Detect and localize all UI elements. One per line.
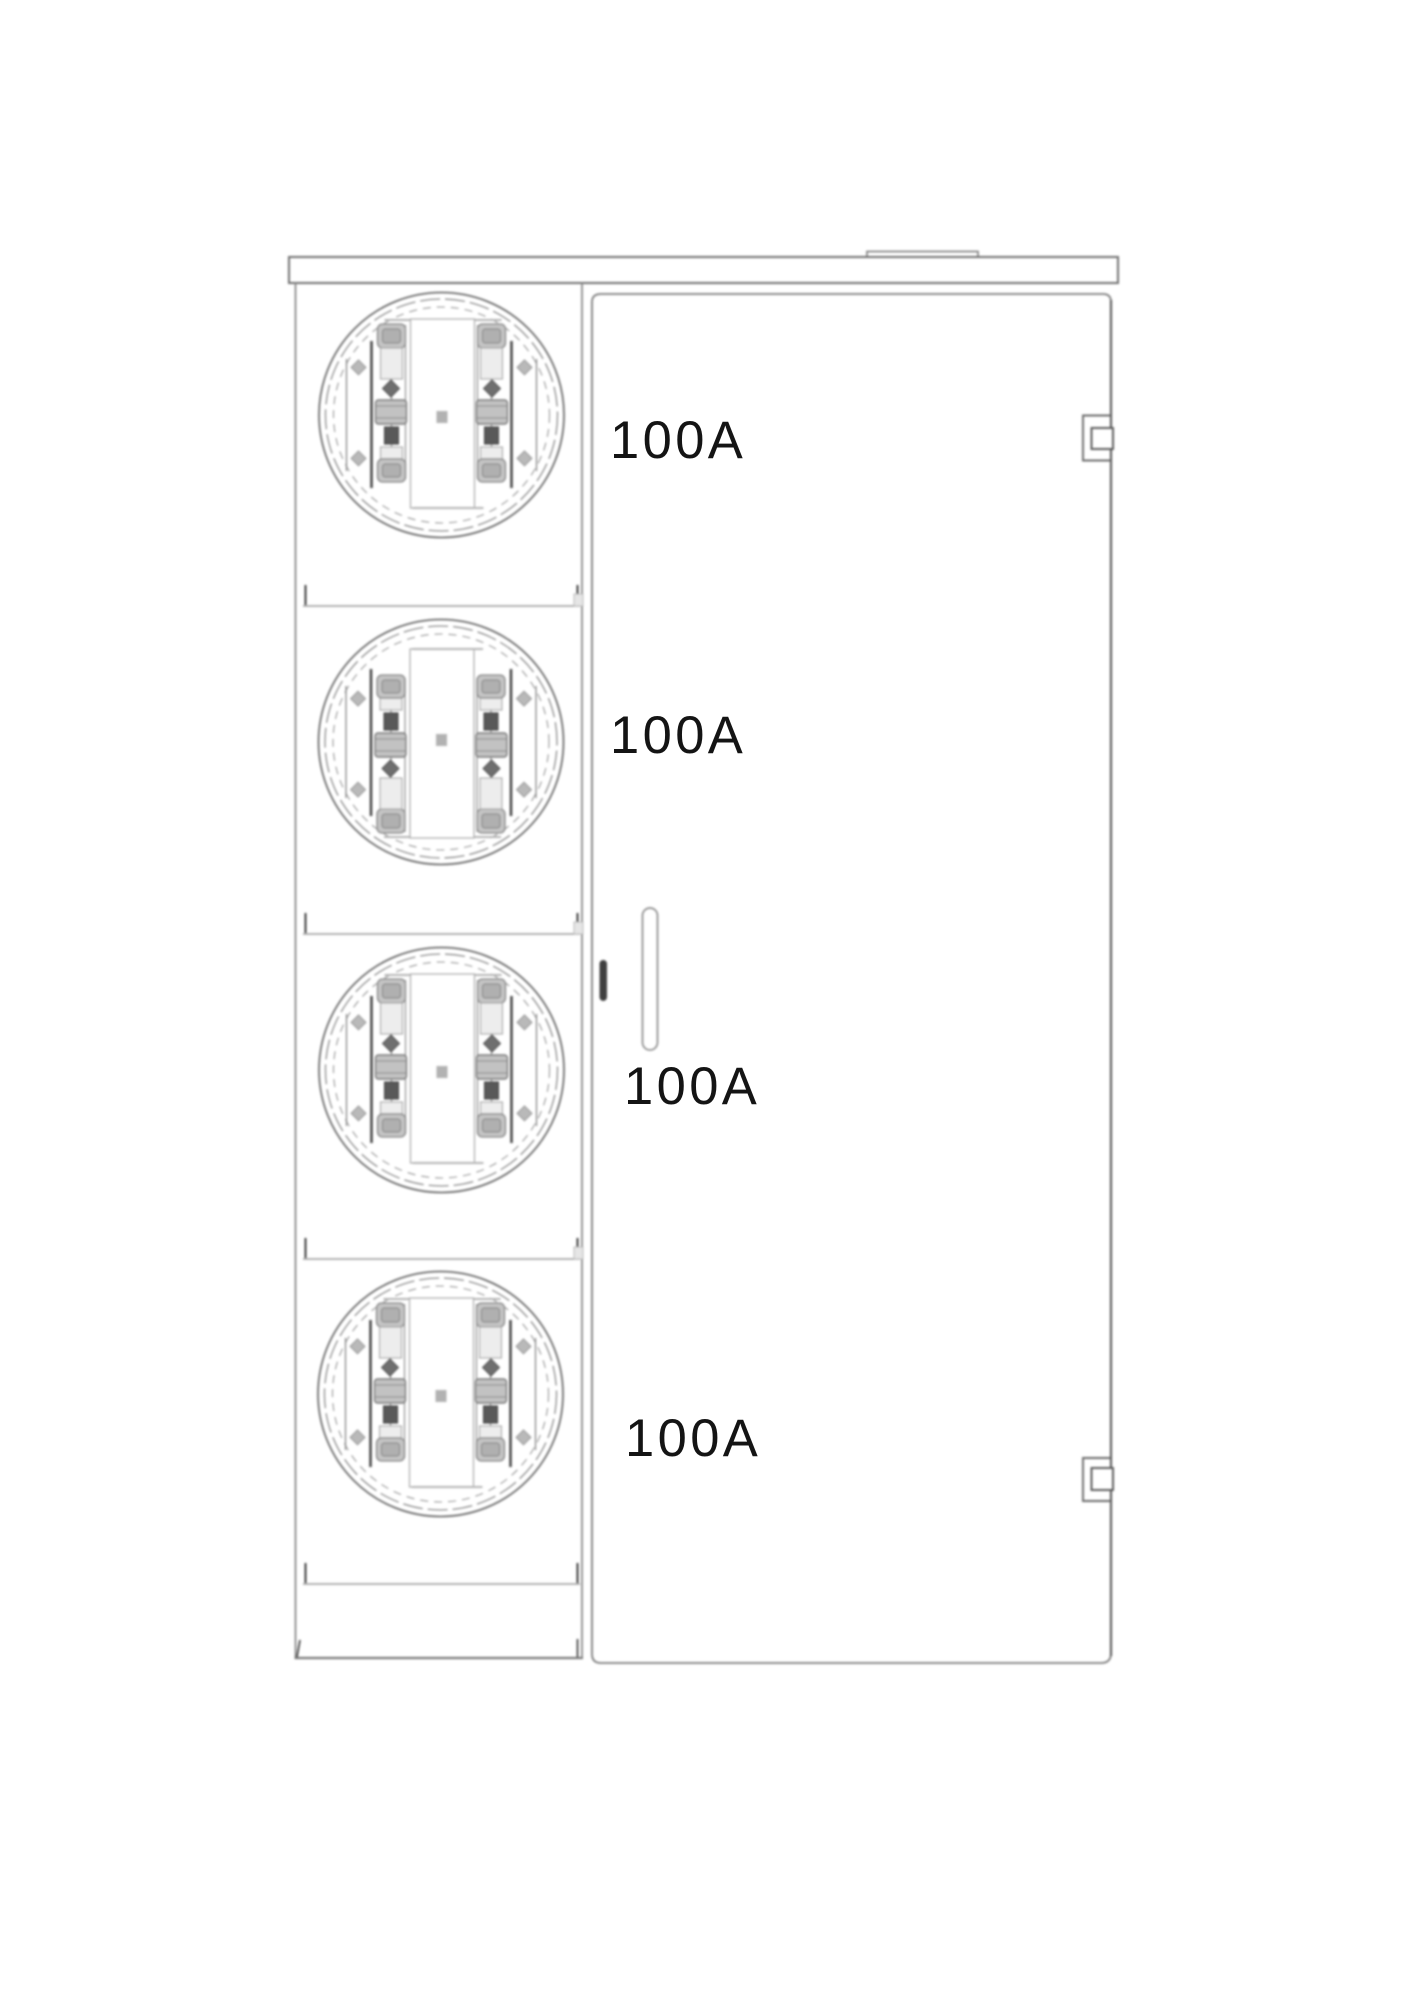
svg-text:100A: 100A bbox=[625, 1409, 761, 1468]
svg-text:100A: 100A bbox=[624, 1057, 760, 1116]
svg-text:100A: 100A bbox=[610, 411, 746, 470]
svg-text:100A: 100A bbox=[610, 706, 746, 765]
